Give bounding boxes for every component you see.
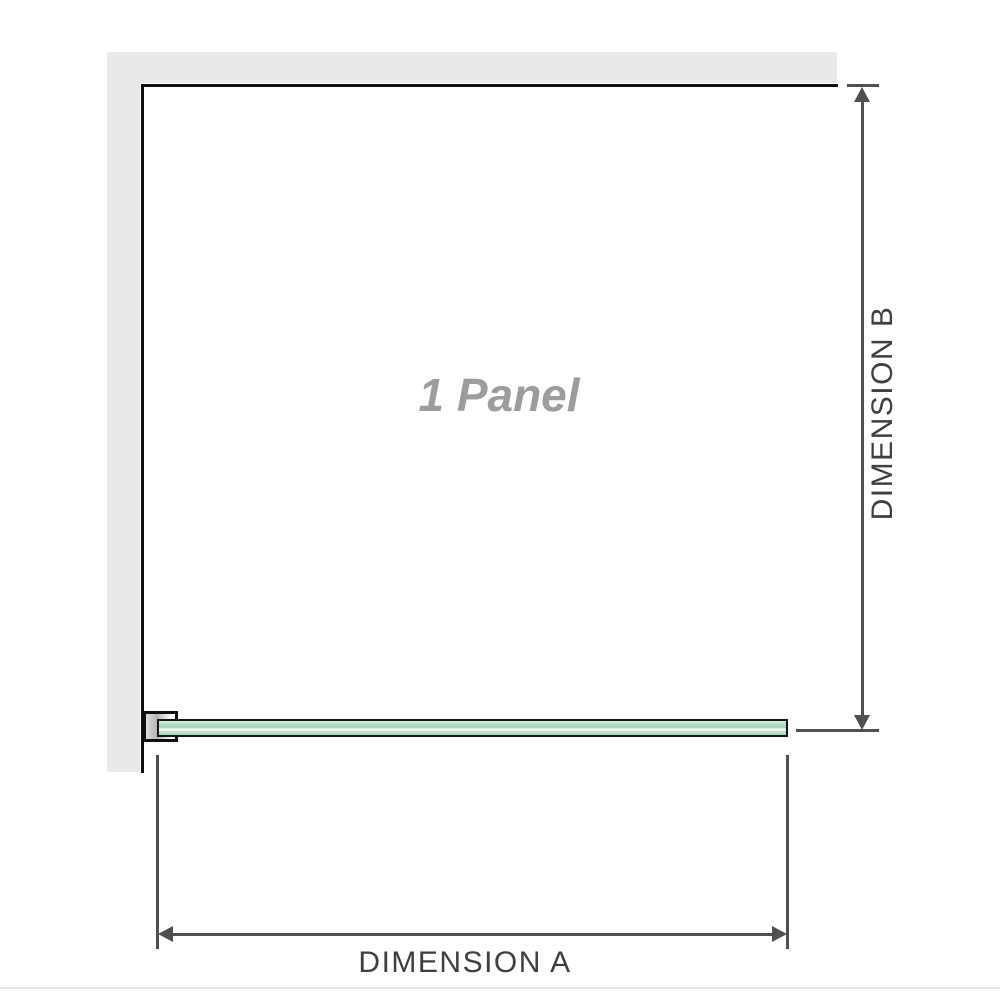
dimension-a-label: DIMENSION A — [358, 946, 571, 980]
dimension-b-label: DIMENSION B — [866, 306, 900, 521]
left-wall-edge-line — [141, 84, 144, 773]
arrow-down-icon — [854, 715, 870, 730]
dimension-a-right-extension-line — [786, 755, 789, 949]
page-baseline-divider — [0, 987, 1000, 989]
dimension-a-line — [170, 933, 775, 936]
dimension-b-bottom-tick — [796, 729, 879, 732]
panel-count-label: 1 Panel — [418, 368, 579, 422]
dimension-a-left-extension-line — [156, 755, 159, 949]
glass-panel-bar — [157, 719, 788, 737]
arrow-right-icon — [772, 926, 787, 942]
top-wall-edge-line — [141, 84, 838, 87]
top-wall — [107, 52, 837, 83]
dimension-b-line — [861, 96, 864, 721]
left-wall — [107, 52, 140, 772]
panel-diagram: 1 Panel DIMENSION B DIMENSION A — [0, 0, 1000, 1000]
